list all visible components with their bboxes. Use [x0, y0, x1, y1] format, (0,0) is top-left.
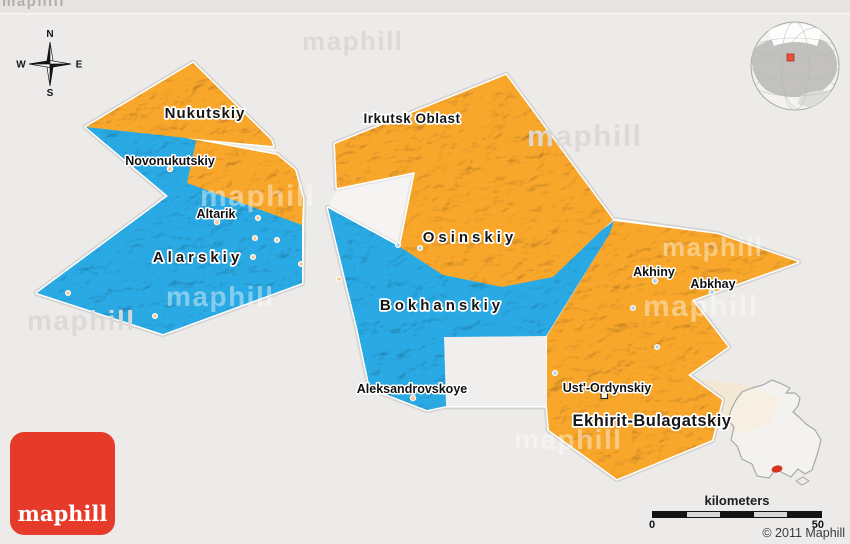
- town-dot: [275, 238, 280, 243]
- watermark-top-edge: maphill: [2, 0, 65, 10]
- town-dot-aleksandrovskoye: [410, 395, 415, 400]
- district-label-alarskiy: Alarskiy: [153, 249, 243, 266]
- town-label-aleksandrovskoye: Aleksandrovskoye: [357, 382, 468, 396]
- scale-segment: [720, 512, 754, 517]
- map-stage: maphill maphil: [0, 0, 850, 544]
- watermark: maphill: [166, 281, 275, 312]
- top-strip: [0, 0, 850, 13]
- town-dot: [631, 306, 636, 311]
- watermark: maphill: [527, 120, 643, 153]
- town-dot: [396, 243, 401, 248]
- town-dot: [299, 262, 304, 267]
- scale-segment: [787, 512, 821, 517]
- compass-north-label: N: [46, 29, 53, 40]
- town-dot: [337, 277, 342, 282]
- town-dot-akhiny: [652, 278, 657, 283]
- town-label-novonukutskiy: Novonukutskiy: [125, 154, 215, 168]
- copyright-notice: © 2011 Maphill: [762, 526, 845, 540]
- town-dot: [418, 246, 423, 251]
- region-inset-island: [796, 477, 809, 485]
- maphill-logo-text: maphill: [10, 501, 115, 526]
- town-dot: [253, 236, 258, 241]
- globe-landmass: [752, 36, 837, 97]
- map-canvas[interactable]: maphill maphil: [0, 0, 850, 544]
- scale-segment: [687, 512, 721, 517]
- scale-bar-segments: [652, 511, 822, 518]
- watermark: maphill: [302, 26, 404, 56]
- district-label-ekhirit-bulagatskiy: Ekhirit-Bulagatskiy: [573, 412, 732, 430]
- region-inset-oblast-outline: [728, 380, 821, 478]
- compass-west-label: W: [16, 60, 26, 71]
- watermark: maphill: [27, 305, 136, 336]
- scale-min-label: 0: [649, 519, 655, 531]
- town-dot: [251, 255, 256, 260]
- town-label-altarik: Altarik: [197, 207, 236, 221]
- compass-rose: N E S W: [16, 29, 82, 99]
- scale-bar-title: kilometers: [652, 493, 822, 508]
- globe-location-marker: [787, 54, 794, 61]
- district-label-nukutskiy: Nukutskiy: [165, 105, 246, 122]
- town-dot: [256, 216, 261, 221]
- compass-south-label: S: [47, 88, 54, 99]
- town-label-abkhay: Abkhay: [690, 277, 735, 291]
- town-dot: [153, 314, 158, 319]
- town-dot: [66, 291, 71, 296]
- scale-segment: [653, 512, 687, 517]
- district-label-osinskiy: Osinskiy: [423, 229, 518, 246]
- scale-segment: [754, 512, 788, 517]
- top-strip-divider: [0, 13, 850, 15]
- town-label-ust-ordynskiy: Ust'-Ordynskiy: [563, 381, 651, 395]
- compass-east-label: E: [76, 60, 83, 71]
- district-label-irkutsk-oblast: Irkutsk Oblast: [363, 111, 460, 126]
- district-label-bokhanskiy: Bokhanskiy: [380, 297, 504, 314]
- watermark: maphill: [662, 232, 764, 262]
- globe-inset[interactable]: [751, 21, 850, 118]
- watermark: maphill: [643, 290, 759, 323]
- town-dot: [553, 371, 558, 376]
- town-dot: [655, 345, 660, 350]
- maphill-logo[interactable]: maphill: [10, 432, 115, 535]
- town-label-akhiny: Akhiny: [633, 265, 675, 279]
